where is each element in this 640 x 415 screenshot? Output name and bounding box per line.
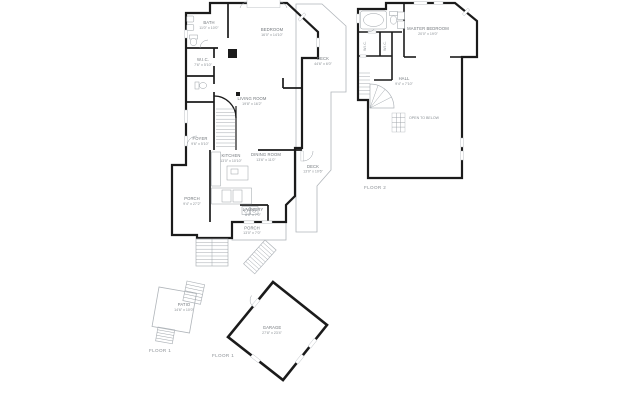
window-icon: [434, 2, 443, 5]
window-icon: [185, 30, 188, 38]
room-label-hall: HALL: [399, 76, 410, 81]
room-label-dining: DINING ROOM: [251, 152, 281, 157]
toilet-icon: [390, 12, 398, 16]
room-label-garage: GARAGE: [263, 325, 282, 330]
room-dims-patio: 14'6" x 10'0": [174, 308, 194, 312]
floor1-sw-stairs: [196, 239, 228, 266]
floor1-deck-outline: [296, 4, 346, 232]
floor2-caption: FLOOR 2: [364, 185, 386, 190]
bath-sink-icon: [187, 25, 194, 31]
door-swing-icon: [303, 151, 313, 161]
window-icon: [262, 221, 272, 223]
room-label-wic-a: W.I.C.: [363, 41, 367, 51]
room-label-deck-right: DECK: [317, 56, 329, 61]
room-label-foyer: FOYER: [193, 136, 208, 141]
ground-caption-left: FLOOR 1: [149, 348, 171, 353]
vanity-sink-icon: [398, 21, 405, 29]
floor1-se-stairs: [244, 240, 277, 274]
room-label-wic: W.I.C.: [197, 57, 209, 62]
room-dims-living: 19'8" x 16'2": [242, 102, 262, 106]
room-dims-porch-left: 9'4" x 27'2": [183, 202, 201, 206]
window-icon: [251, 354, 261, 363]
floor1-plan: BATH 11'0" x 10'0" BEDROOM 16'0" x 14'10…: [172, 0, 346, 274]
kitchen-counter-icon: [212, 152, 221, 186]
room-label-laundry: LAUNDRY: [243, 207, 264, 212]
skylight-grid-icon: [392, 113, 405, 132]
room-dims-laundry: 8'0" x 7'0": [245, 213, 261, 217]
ground-plans: PATIO 14'6" x 10'0" FLOOR 1 GARAGE 27'8"…: [149, 281, 327, 380]
kitchen-counter-icon: [212, 188, 252, 204]
room-dims-master: 20'0" x 19'0": [418, 32, 438, 36]
ground-caption-garage: FLOOR 1: [212, 353, 234, 358]
room-dims-bath: 11'0" x 10'0": [199, 26, 219, 30]
window-icon: [357, 14, 360, 23]
room-label-patio: PATIO: [178, 302, 191, 307]
door-gap: [317, 38, 319, 47]
floor1-bedroom-closet: [228, 49, 237, 58]
room-dims-wic: 7'6" x 5'10": [194, 63, 212, 67]
floor-plan-canvas: BATH 11'0" x 10'0" BEDROOM 16'0" x 14'10…: [0, 0, 640, 415]
vanity-sink-icon: [398, 12, 405, 20]
window-icon: [308, 338, 317, 348]
room-dims-foyer: 9'6" x 5'10": [191, 142, 209, 146]
toilet-icon: [390, 16, 396, 24]
floor2-plan: MASTER BEDROOM 20'0" x 19'0" W.I.C. W.I.…: [357, 2, 477, 190]
window-icon: [461, 138, 464, 147]
toilet-icon: [195, 82, 199, 89]
door-swing-icon: [200, 40, 208, 48]
bay-window-icon: [247, 0, 280, 8]
room-dims-deck-small: 13'0" x 10'6": [303, 170, 323, 174]
room-dims-dining: 13'6" x 11'0": [256, 158, 276, 162]
window-icon: [244, 221, 254, 223]
room-dims-bedroom: 16'0" x 14'10": [261, 33, 283, 37]
toilet-icon: [199, 83, 206, 89]
room-label-wic-b: W.I.C.: [383, 41, 387, 51]
room-label-kitchen: KITCHEN: [221, 153, 240, 158]
room-dims-deck-right: 44'6" x 6'0": [314, 62, 332, 66]
floor-plan-svg: BATH 11'0" x 10'0" BEDROOM 16'0" x 14'10…: [0, 0, 640, 415]
room-dims-kitchen: 13'0" x 10'10": [220, 159, 242, 163]
floor2-fixtures: [361, 11, 405, 29]
patio-ne-stairs: [183, 281, 205, 304]
room-label-porch-bottom: PORCH: [244, 226, 260, 231]
kitchen-island-icon: [227, 166, 248, 180]
door-gap: [301, 151, 303, 161]
window-icon: [414, 2, 427, 5]
room-label-open-below: OPEN TO BELOW: [409, 116, 440, 120]
room-dims-garage: 27'8" x 23'4": [262, 331, 282, 335]
window-icon: [461, 151, 464, 160]
toilet-icon: [190, 38, 196, 46]
room-dims-hall: 9'4" x 7'10": [395, 82, 413, 86]
room-label-living: LIVING ROOM: [237, 96, 266, 101]
floor2-stairs: [359, 73, 394, 108]
floor1-interior-stairs: [216, 109, 235, 146]
window-icon: [185, 110, 188, 123]
room-label-bedroom: BEDROOM: [261, 27, 284, 32]
room-dims-porch-bottom: 13'0" x 7'0": [243, 231, 261, 235]
door-gap: [360, 55, 366, 57]
patio-sw-stairs: [156, 327, 175, 344]
window-icon: [295, 354, 304, 364]
room-label-porch-left: PORCH: [184, 196, 200, 201]
room-label-deck-small: DECK: [307, 164, 319, 169]
floor1-openings: [185, 13, 319, 224]
floor1-curved-wall: [214, 96, 236, 118]
bath-sink-icon: [187, 16, 194, 22]
room-label-master: MASTER BEDROOM: [407, 26, 449, 31]
room-label-bath: BATH: [203, 20, 214, 25]
